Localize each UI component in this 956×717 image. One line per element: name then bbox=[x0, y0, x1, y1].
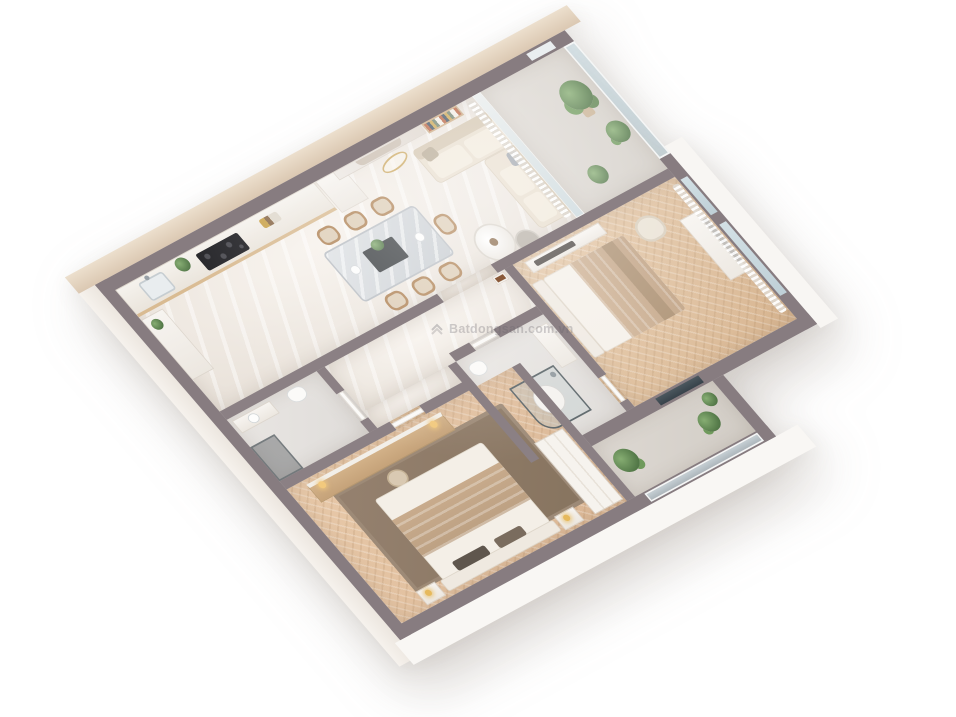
watermark: Batdongsan.com.vn bbox=[430, 322, 574, 336]
scene-shadow-wrap bbox=[0, 0, 956, 717]
floorplan-render: Batdongsan.com.vn bbox=[0, 0, 956, 717]
watermark-chevron-logo bbox=[430, 322, 444, 336]
watermark-text: Batdongsan.com.vn bbox=[449, 322, 574, 336]
